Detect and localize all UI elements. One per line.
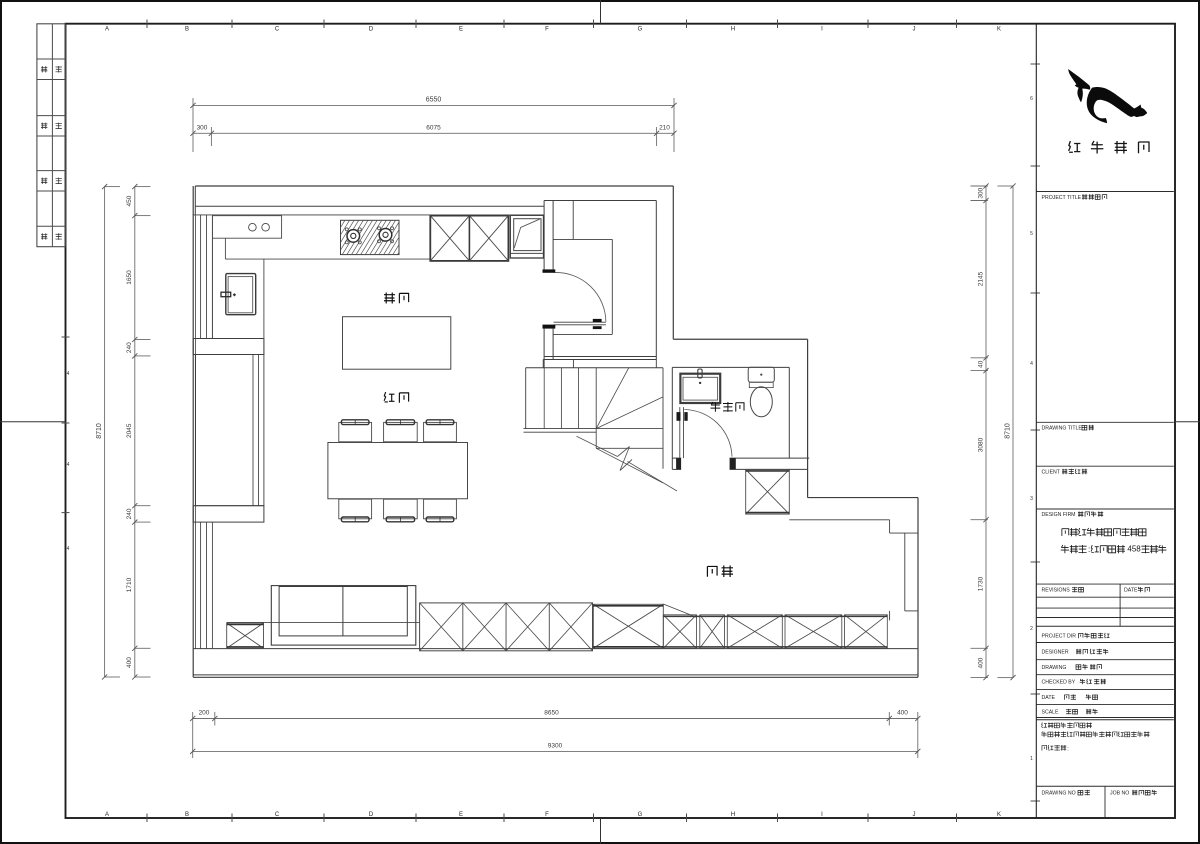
- svg-text:E: E: [459, 812, 463, 818]
- svg-text:DATE: DATE: [1042, 695, 1056, 701]
- svg-text:D: D: [369, 27, 374, 33]
- svg-text:K: K: [997, 812, 1001, 818]
- svg-text:B: B: [185, 27, 189, 33]
- svg-text:6550: 6550: [426, 97, 442, 104]
- svg-text:4: 4: [67, 462, 70, 468]
- svg-text:PROJECT TITLE: PROJECT TITLE: [1042, 195, 1082, 201]
- svg-text:H: H: [731, 812, 735, 818]
- svg-text:4: 4: [67, 546, 70, 552]
- svg-text:G: G: [638, 812, 643, 818]
- svg-text:DATE: DATE: [1124, 588, 1138, 594]
- svg-text:H: H: [731, 27, 735, 33]
- svg-text:6075: 6075: [426, 125, 441, 132]
- svg-text:210: 210: [659, 125, 670, 132]
- svg-text:3080: 3080: [978, 437, 985, 452]
- svg-text:450: 450: [126, 195, 133, 206]
- svg-text:458: 458: [1127, 545, 1141, 554]
- svg-text:240: 240: [126, 342, 133, 353]
- svg-text:300: 300: [197, 125, 208, 132]
- svg-text:J: J: [913, 812, 916, 818]
- svg-text:1650: 1650: [126, 270, 133, 285]
- svg-text:400: 400: [897, 710, 908, 717]
- svg-text:I: I: [821, 27, 823, 33]
- svg-text:5: 5: [1030, 231, 1033, 237]
- svg-text:CHECKED BY: CHECKED BY: [1042, 680, 1076, 686]
- svg-text:2: 2: [1030, 626, 1033, 632]
- svg-text:G: G: [638, 27, 643, 33]
- svg-text:9300: 9300: [548, 742, 563, 749]
- svg-text::: :: [1067, 747, 1069, 753]
- svg-text:1: 1: [1030, 756, 1033, 762]
- svg-text:A: A: [105, 812, 109, 818]
- svg-text:8710: 8710: [1004, 423, 1011, 439]
- svg-text:E: E: [459, 27, 463, 33]
- svg-text:CLIENT: CLIENT: [1042, 469, 1061, 475]
- svg-text:B: B: [185, 812, 189, 818]
- svg-text:K: K: [997, 27, 1001, 33]
- svg-text:JOB NO: JOB NO: [1110, 791, 1129, 797]
- svg-text:8710: 8710: [96, 423, 103, 439]
- svg-text:1710: 1710: [126, 577, 133, 592]
- svg-text:8650: 8650: [544, 710, 559, 717]
- svg-text:4: 4: [1030, 361, 1033, 367]
- svg-text:REVISIONS: REVISIONS: [1042, 588, 1071, 594]
- svg-text:3: 3: [1030, 496, 1033, 502]
- svg-text:40: 40: [978, 360, 985, 368]
- svg-text:SCALE: SCALE: [1042, 710, 1060, 716]
- svg-text:DRAWING: DRAWING: [1042, 665, 1067, 671]
- svg-text:C: C: [275, 27, 280, 33]
- svg-text:2045: 2045: [126, 423, 133, 438]
- svg-text:1730: 1730: [978, 576, 985, 591]
- svg-text:DRAWING NO: DRAWING NO: [1042, 791, 1076, 797]
- svg-text::: :: [1088, 545, 1090, 554]
- svg-text:C: C: [275, 812, 280, 818]
- svg-text:PROJECT DIR: PROJECT DIR: [1042, 634, 1077, 640]
- svg-text:4: 4: [67, 371, 70, 377]
- svg-text:400: 400: [126, 657, 133, 668]
- svg-text:F: F: [545, 27, 549, 33]
- svg-text:DESIGN FIRM: DESIGN FIRM: [1042, 512, 1076, 518]
- svg-text:6: 6: [1030, 96, 1033, 102]
- svg-text:2145: 2145: [978, 271, 985, 286]
- svg-text:A: A: [105, 27, 109, 33]
- svg-text:DRAWING TITLE: DRAWING TITLE: [1042, 426, 1083, 432]
- svg-text:200: 200: [199, 710, 210, 717]
- svg-text:300: 300: [978, 187, 985, 198]
- svg-text:D: D: [369, 812, 374, 818]
- svg-text:DESIGNER: DESIGNER: [1042, 650, 1069, 656]
- svg-text:F: F: [545, 812, 549, 818]
- svg-text:400: 400: [978, 657, 985, 668]
- svg-text:240: 240: [126, 508, 133, 519]
- svg-text:J: J: [913, 27, 916, 33]
